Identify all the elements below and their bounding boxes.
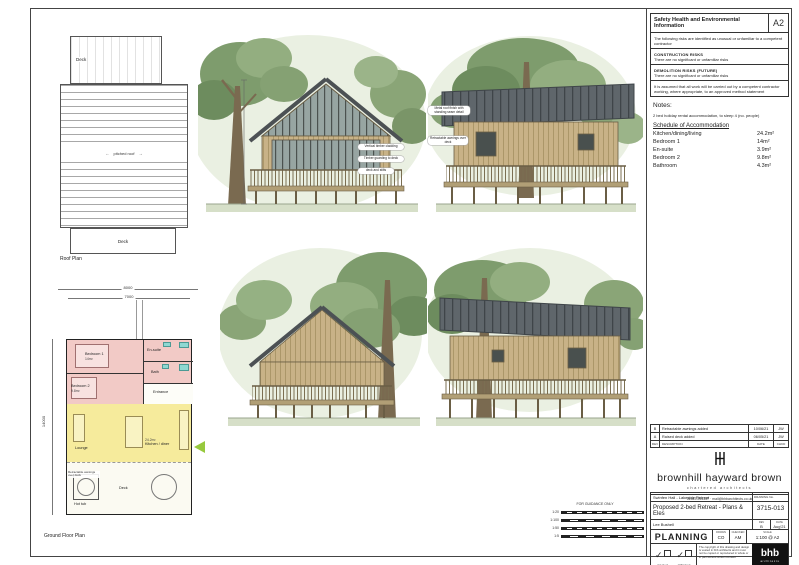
revision-header: CHKD bbox=[773, 441, 788, 447]
title-block: Swinfen Hall - Lakeside Retreat DRAWING … bbox=[650, 492, 789, 565]
revision-header: DATE bbox=[748, 441, 773, 447]
room-name: Kitchen/dining/living bbox=[653, 131, 757, 139]
scale-label: 1:50 bbox=[546, 526, 559, 530]
revision-description: Raised deck added bbox=[660, 435, 748, 439]
interior-wall bbox=[67, 373, 143, 374]
pitch-arrow-right-icon: → bbox=[138, 151, 142, 156]
basin bbox=[163, 342, 171, 347]
drawing-sheet: Deck ← pitched roof → Deck Roof Plan 800… bbox=[0, 0, 799, 565]
room-area: 4.3m² bbox=[757, 163, 787, 171]
demolition-risks: DEMOLITION RISKS (FUTURE) There are no s… bbox=[651, 65, 788, 81]
dimension-line-outer: 8000 bbox=[58, 289, 198, 290]
pitched-roof-label: pitched roof bbox=[114, 151, 135, 156]
scale-row: 1:5 bbox=[546, 532, 644, 540]
entrance-arrow-icon bbox=[194, 441, 205, 453]
room-label-kitchen: 24.2m² Kitchen / diner bbox=[145, 438, 179, 447]
revision-letter: A bbox=[651, 433, 660, 440]
checkmark-icon: ✓ bbox=[676, 550, 684, 560]
title-panel: Safety Health and Environmental Informat… bbox=[646, 8, 792, 557]
notes-section: Notes: 2 bed holiday rental accommodatio… bbox=[653, 102, 787, 171]
safety-box: Safety Health and Environmental Informat… bbox=[650, 13, 789, 97]
qa-check-cell: ✓ QA check bbox=[655, 545, 671, 565]
shower bbox=[179, 342, 189, 348]
drawn-value: CO bbox=[713, 535, 729, 540]
notes-heading: Notes: bbox=[653, 102, 787, 109]
elevation-rear-drawing bbox=[220, 238, 427, 445]
drawing-status: PLANNING bbox=[651, 530, 713, 543]
dimension-label: 8000 bbox=[122, 285, 135, 290]
entrance-lobby bbox=[144, 384, 193, 404]
schedule-row: Kitchen/dining/living 24.2m² bbox=[653, 131, 787, 139]
walkway-line bbox=[142, 300, 143, 339]
cdm-check-cell: ✓ CDM check bbox=[676, 545, 692, 565]
firm-name: brownhill hayward brown bbox=[650, 472, 789, 484]
bath-tub bbox=[179, 364, 189, 371]
checked-value: AM bbox=[730, 535, 746, 540]
scale-label: 1:5 bbox=[546, 534, 559, 538]
bhb-logo: bhb architects bbox=[752, 544, 788, 565]
elevation-front: Vertical timber cladding Timber guarding… bbox=[198, 28, 426, 230]
interior-wall bbox=[143, 361, 193, 362]
room-label-entrance: Entrance bbox=[153, 390, 168, 395]
elevation-side-drawing bbox=[428, 28, 643, 230]
elevation-side-right: Metal roof finish with standing seam det… bbox=[428, 28, 643, 230]
demolition-risks-text: There are no significant or unfamiliar r… bbox=[654, 73, 728, 78]
scale-label: 1:20 bbox=[546, 510, 559, 514]
safety-intro: The following risks are identified as un… bbox=[651, 33, 788, 49]
room-name: Bathroom bbox=[653, 163, 757, 171]
revision-letter: B bbox=[651, 425, 660, 432]
dimension-line-inner: 7000 bbox=[68, 298, 190, 299]
room-label-ensuite: En-suite bbox=[147, 348, 161, 353]
bhb-logo-subtext: architects bbox=[760, 560, 779, 563]
room-label-bath: Bath bbox=[151, 370, 159, 375]
room-name: Bedroom 1 bbox=[653, 139, 757, 147]
scale-ruler bbox=[561, 527, 644, 530]
callout-guarding: Timber guarding to deck bbox=[358, 156, 404, 162]
scale-ruler bbox=[561, 519, 644, 522]
room-area: 24.2m² bbox=[757, 131, 787, 139]
awning-annotation: Retractable awnings over deck bbox=[68, 471, 100, 478]
revision-table: B Retractable awnings added 10/06/21 JW … bbox=[650, 424, 789, 448]
roof-plan-caption: Roof Plan bbox=[60, 256, 82, 262]
scale-bar: FOR GUIDANCE ONLY 1:20 1:100 1:50 1:5 bbox=[546, 502, 644, 546]
revision-date: 10/06/21 bbox=[748, 425, 773, 432]
schedule-heading: Schedule of Accommodation bbox=[653, 123, 787, 129]
pitched-roof-annotation: ← pitched roof → bbox=[61, 147, 187, 160]
dimension-label: 14000 bbox=[41, 416, 46, 427]
sofa bbox=[73, 414, 85, 442]
room-area: 14m² bbox=[85, 357, 104, 361]
roof-plan: Deck ← pitched roof → Deck Roof Plan bbox=[58, 30, 190, 265]
checked-label: CHECKED bbox=[730, 531, 746, 534]
drawn-label: DRAWN bbox=[713, 531, 729, 534]
pitch-arrow-left-icon: ← bbox=[106, 151, 110, 156]
scale-row: 1:20 bbox=[546, 508, 644, 516]
revision-header: REV bbox=[651, 441, 660, 447]
room-name: Kitchen / diner bbox=[145, 442, 169, 446]
checked-cell: CHECKED AM bbox=[730, 530, 747, 543]
callout-stilts: deck and stilts bbox=[358, 168, 394, 174]
room-area: 14m² bbox=[757, 139, 787, 147]
kitchen-units bbox=[179, 410, 189, 450]
safety-assumption: It is assumed that all work will be carr… bbox=[651, 81, 788, 96]
firm-tagline: chartered architects bbox=[650, 485, 789, 490]
revision-initials: JW bbox=[773, 425, 788, 432]
notes-text: 2 bed holiday rental accommodation, to s… bbox=[653, 113, 787, 118]
scale-row: 1:100 bbox=[546, 516, 644, 524]
revision-header-row: REV DESCRIPTION DATE CHKD bbox=[651, 441, 788, 447]
deck-label: Deck bbox=[118, 239, 128, 244]
scale-ruler bbox=[561, 535, 644, 538]
room-name: Bedroom 2 bbox=[653, 155, 757, 163]
callout-awnings: Retractable awnings over deck bbox=[428, 136, 468, 145]
schedule-row: Bathroom 4.3m² bbox=[653, 163, 787, 171]
construction-risks: CONSTRUCTION RISKS There are no signific… bbox=[651, 49, 788, 65]
revision-row: B Retractable awnings added 10/06/21 JW bbox=[651, 425, 788, 433]
room-label-deck: Deck bbox=[119, 486, 128, 491]
bhb-monogram-icon bbox=[712, 451, 728, 466]
deck-table bbox=[151, 474, 177, 500]
scale-bar-title: FOR GUIDANCE ONLY bbox=[546, 502, 644, 506]
client-name: Lee Bushell bbox=[651, 520, 752, 529]
project-name: Swinfen Hall - Lakeside Retreat bbox=[651, 493, 752, 501]
copyright-disclaimer: The copyright of this drawing and design… bbox=[697, 544, 752, 565]
revision-cell: REV B bbox=[752, 520, 770, 529]
rev-value: B bbox=[753, 524, 770, 529]
scale-label: SCALE bbox=[747, 531, 788, 534]
drawing-no-label: DRAWING No. bbox=[752, 493, 788, 501]
revision-date: 06/05/21 bbox=[748, 433, 773, 440]
check-box bbox=[685, 550, 692, 557]
room-label-bedroom2: Bedroom 2 9.8m² bbox=[71, 384, 90, 393]
roof-plan-deck-top: Deck bbox=[70, 36, 162, 84]
dimension-label: 7000 bbox=[123, 294, 136, 299]
scale-cell: SCALE 1:100 @ A2 bbox=[747, 530, 788, 543]
drawn-cell: DRAWN CO bbox=[713, 530, 730, 543]
safety-title: Safety Health and Environmental Informat… bbox=[650, 13, 769, 33]
checkmark-icon: ✓ bbox=[655, 550, 663, 560]
revision-row: A Raised deck added 06/05/21 JW bbox=[651, 433, 788, 441]
elevation-side-drawing bbox=[428, 238, 643, 445]
drawing-title: Proposed 2-bed Retreat - Plans & Eles bbox=[651, 502, 752, 519]
walkway-line bbox=[136, 300, 137, 339]
date-cell: DATE Aug'21 bbox=[770, 520, 788, 529]
floor-plan-outline: Bedroom 1 14m² Bedroom 2 9.8m² En-suite … bbox=[66, 339, 192, 515]
qa-checks: ✓ QA check ✓ CDM check bbox=[651, 544, 697, 565]
drawing-number: 3715-013 bbox=[752, 502, 788, 519]
callout-metal-roof: Metal roof finish with standing seam det… bbox=[428, 106, 470, 115]
revision-description: Retractable awnings added bbox=[660, 427, 748, 431]
revision-header: DESCRIPTION bbox=[660, 442, 748, 446]
room-label-hot-tub: Hot tub bbox=[74, 502, 86, 507]
revision-initials: JW bbox=[773, 433, 788, 440]
scale-value: 1:100 @ A2 bbox=[747, 535, 788, 540]
roof-plan-deck-bottom: Deck bbox=[70, 228, 176, 254]
hot-tub bbox=[73, 474, 99, 500]
room-label-lounge: Lounge bbox=[75, 446, 88, 451]
date-value: Aug'21 bbox=[771, 524, 788, 529]
elevation-side-left bbox=[428, 238, 643, 445]
room-name: Bedroom 1 bbox=[85, 352, 104, 356]
scale-ruler bbox=[561, 511, 644, 514]
room-area: 3.9m² bbox=[757, 147, 787, 155]
room-area: 9.8m² bbox=[757, 155, 787, 163]
deck-label: Deck bbox=[75, 57, 87, 62]
elevation-rear bbox=[220, 238, 427, 445]
schedule-row: Bedroom 1 14m² bbox=[653, 139, 787, 147]
roof-plan-roof: ← pitched roof → bbox=[60, 84, 188, 228]
room-name: Bedroom 2 bbox=[71, 384, 90, 388]
basin bbox=[162, 364, 169, 369]
room-area: 9.8m² bbox=[71, 389, 90, 393]
dimension-line-left bbox=[52, 339, 53, 515]
room-label-bedroom1: Bedroom 1 14m² bbox=[85, 352, 104, 361]
paper-size-badge: A2 bbox=[769, 13, 789, 33]
room-name: En-suite bbox=[653, 147, 757, 155]
schedule-row: En-suite 3.9m² bbox=[653, 147, 787, 155]
ground-floor-caption: Ground Floor Plan bbox=[44, 533, 85, 539]
check-box bbox=[664, 550, 671, 557]
dining-table bbox=[125, 416, 143, 448]
bhb-logo-text: bhb bbox=[761, 549, 779, 559]
ground-floor-plan: 8000 7000 14000 bbox=[44, 283, 206, 545]
scale-row: 1:50 bbox=[546, 524, 644, 532]
schedule-row: Bedroom 2 9.8m² bbox=[653, 155, 787, 163]
callout-cladding: Vertical timber cladding bbox=[358, 144, 404, 150]
elevation-front-drawing bbox=[198, 28, 426, 230]
scale-label: 1:100 bbox=[546, 518, 559, 522]
construction-risks-text: There are no significant or unfamiliar r… bbox=[654, 57, 728, 62]
